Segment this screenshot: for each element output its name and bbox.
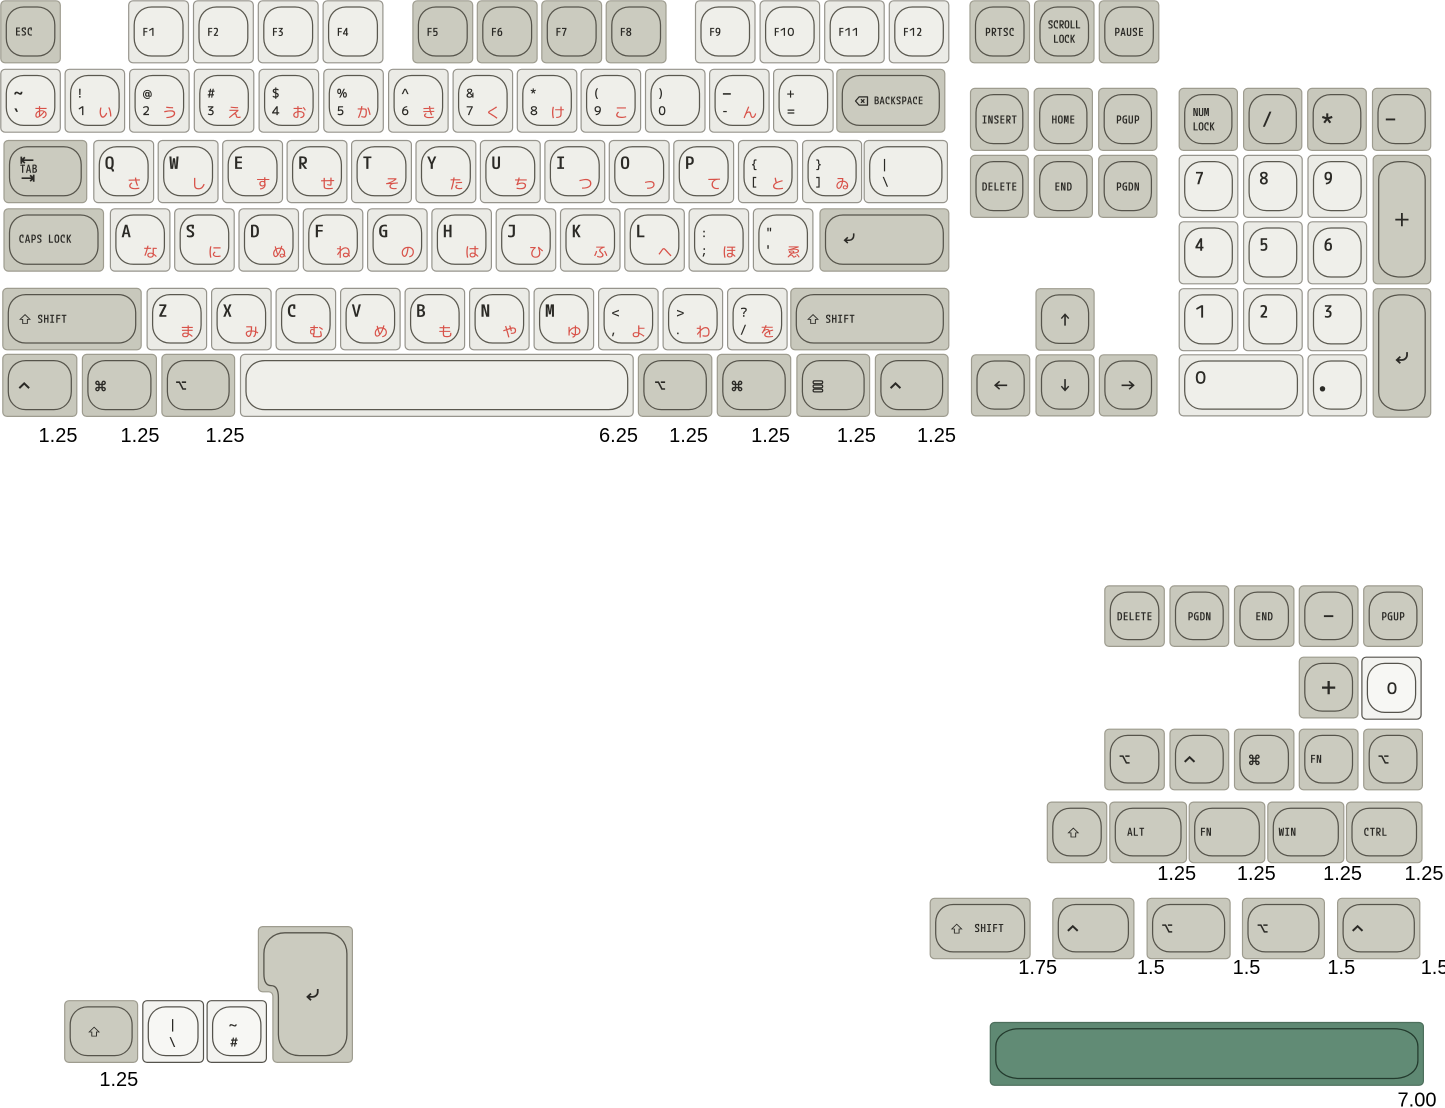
svg-text:1.75: 1.75 bbox=[1018, 957, 1057, 979]
svg-text:1.25: 1.25 bbox=[1157, 863, 1196, 885]
svg-text:1.25: 1.25 bbox=[1237, 863, 1276, 885]
svg-text:1.25: 1.25 bbox=[121, 425, 160, 447]
svg-text:1.5: 1.5 bbox=[1421, 957, 1445, 979]
svg-text:1.25: 1.25 bbox=[39, 425, 78, 447]
svg-text:1.25: 1.25 bbox=[751, 425, 790, 447]
svg-text:6.25: 6.25 bbox=[599, 425, 638, 447]
svg-text:1.25: 1.25 bbox=[917, 425, 956, 447]
svg-text:1.5: 1.5 bbox=[1327, 957, 1355, 979]
svg-text:1.25: 1.25 bbox=[206, 425, 245, 447]
svg-text:1.5: 1.5 bbox=[1233, 957, 1261, 979]
svg-text:7.00: 7.00 bbox=[1398, 1089, 1437, 1108]
svg-text:1.5: 1.5 bbox=[1137, 957, 1165, 979]
svg-text:1.25: 1.25 bbox=[837, 425, 876, 447]
svg-text:1.25: 1.25 bbox=[1323, 863, 1362, 885]
svg-text:1.25: 1.25 bbox=[1405, 863, 1444, 885]
svg-text:1.25: 1.25 bbox=[669, 425, 708, 447]
svg-text:1.25: 1.25 bbox=[99, 1069, 138, 1091]
